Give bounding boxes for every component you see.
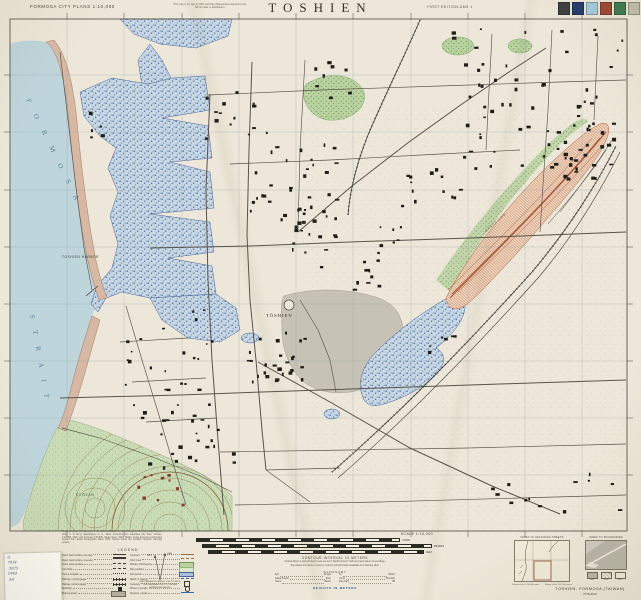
scale-bar-feet: FEET bbox=[196, 550, 451, 554]
scale-bar-yards: YARDS bbox=[196, 538, 451, 542]
footer-sheet-subtitle: (TŌSHIEN) bbox=[538, 592, 641, 596]
boundary-legend-item: GUN bbox=[600, 572, 612, 581]
boundary-legend-item: SHŌ bbox=[614, 572, 626, 581]
scale-bar-meters: METERS bbox=[196, 544, 451, 548]
adjoining-sheets-map bbox=[514, 540, 570, 582]
swatch-red bbox=[600, 2, 612, 15]
legend-row: Built-up areas bbox=[62, 591, 126, 596]
woods bbox=[303, 37, 532, 120]
index-adjoining-sheets: INDEX TO ADJOINING SHEETS Sheets of the … bbox=[511, 536, 573, 586]
inset-title: INDEX TO BOUNDARIES bbox=[584, 536, 628, 539]
stream-symbol bbox=[181, 592, 194, 597]
swatch-lightblue bbox=[586, 2, 598, 15]
credits-note: Prepared under the direction of the Chie… bbox=[62, 531, 162, 545]
grid-north-label: GN bbox=[147, 553, 152, 557]
city-label: TŌSHIEN bbox=[266, 313, 293, 318]
harbor-label: TOSHIEN HARBOR bbox=[62, 255, 99, 259]
footer-sheet-title: TOSHIEN, FORMOSA (TAIWAN) bbox=[538, 586, 641, 591]
declination-diagram: GN MN bbox=[138, 549, 182, 581]
index-boundaries: INDEX TO BOUNDARIES SHI GUN SHŌ bbox=[584, 536, 628, 581]
glossary-row: HamaBeach bbox=[275, 581, 331, 584]
builtup-symbol bbox=[111, 591, 126, 597]
map-canvas: FORMOSA STRAIT TOSHIEN HARBOR TŌSHIEN SY… bbox=[0, 0, 641, 600]
inset-title: INDEX TO ADJOINING SHEETS bbox=[511, 536, 573, 539]
scale-label: SCALE 1:10,000 bbox=[401, 532, 433, 536]
map-sheet: FORMOSA STRAIT TOSHIEN HARBOR TŌSHIEN SY… bbox=[0, 0, 641, 600]
boundaries-map bbox=[585, 540, 627, 570]
swatch-gray bbox=[628, 2, 640, 15]
note-paragraph: Boundaries and names revised to conform … bbox=[262, 565, 408, 568]
swatch-green bbox=[614, 2, 626, 15]
catalog-slip: G 7934 .T675 1944 .A4 bbox=[3, 551, 62, 600]
legend-left-column: Road, hard surface, two-way Road, hard s… bbox=[62, 553, 126, 596]
glossary-title: GLOSSARY bbox=[262, 570, 408, 574]
harbor-water bbox=[80, 19, 259, 343]
legend-row: Streams, canals bbox=[130, 591, 194, 596]
heights-note: HEIGHTS IN METERS bbox=[262, 586, 408, 590]
declination-caption: GRID MAGNETIC ANGLE 1°30′ (27 MILS) USE … bbox=[112, 581, 208, 590]
color-swatches bbox=[558, 2, 640, 15]
map-notes: CONTOUR INTERVAL 10 METERS Vertical datu… bbox=[262, 556, 408, 590]
hill bbox=[23, 420, 232, 531]
boundary-legend-item: SHI bbox=[586, 572, 598, 581]
hill-label: SYŌZAN bbox=[76, 493, 95, 497]
glossary-table: ByōTemple Gawa (Kawa)River HamaBeach KōH… bbox=[262, 574, 408, 584]
swatch-blue bbox=[572, 2, 584, 15]
contour-interval-note: CONTOUR INTERVAL 10 METERS bbox=[262, 556, 408, 560]
glossary-row: Zan (San)Hill bbox=[339, 581, 395, 584]
edition-note: FIRST EDITION-AMS 1 bbox=[400, 5, 500, 9]
note-paragraph: Vertical datum is approximately mean sea… bbox=[262, 561, 408, 564]
sheet-title: TOSHIEN bbox=[0, 0, 641, 16]
magnetic-north-label: MN bbox=[168, 552, 173, 556]
swatch-black bbox=[558, 2, 570, 15]
boundary-legend: SHI GUN SHŌ bbox=[584, 572, 628, 581]
road-two-way-symbol bbox=[113, 554, 126, 558]
